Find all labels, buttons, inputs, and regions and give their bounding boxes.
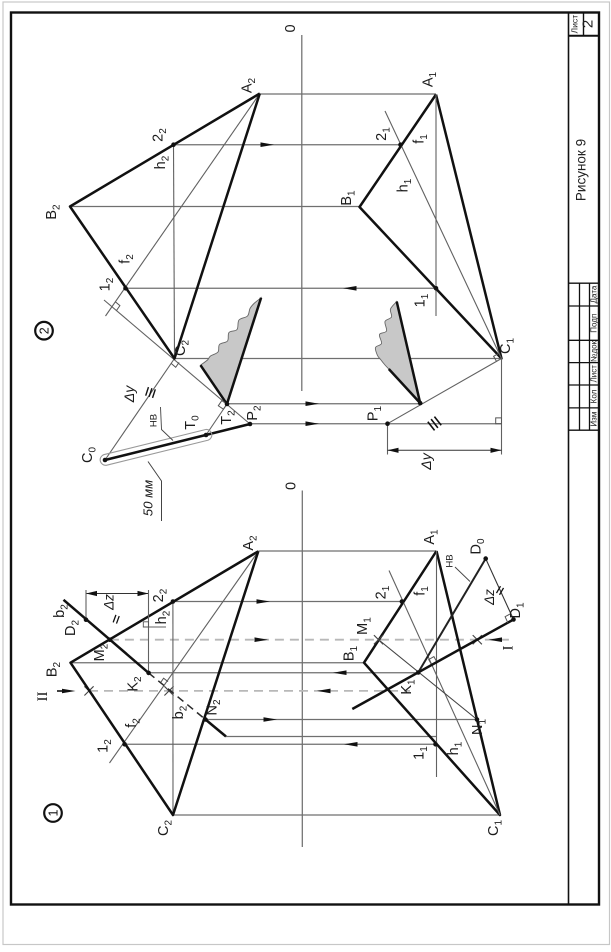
svg-text:0: 0 xyxy=(283,24,299,32)
svg-text:Лист: Лист xyxy=(590,365,599,383)
svg-text:Рисунок 9: Рисунок 9 xyxy=(574,139,589,201)
svg-text:2: 2 xyxy=(580,20,597,28)
svg-text:II: II xyxy=(35,692,51,702)
svg-text:2: 2 xyxy=(37,327,51,334)
svg-text:Δy: Δy xyxy=(418,452,434,470)
svg-text:№док: №док xyxy=(590,340,599,362)
svg-text:Подп: Подп xyxy=(590,314,599,333)
svg-text:1: 1 xyxy=(46,809,60,816)
svg-text:Изм: Изм xyxy=(590,412,599,427)
svg-text:Δz: Δz xyxy=(102,594,117,611)
svg-text:Δy: Δy xyxy=(121,385,137,403)
svg-text:НВ: НВ xyxy=(149,414,160,427)
svg-text:Лист: Лист xyxy=(570,15,580,34)
svg-text:Кол: Кол xyxy=(590,389,599,403)
svg-text:НВ: НВ xyxy=(445,554,456,567)
svg-text:50 мм: 50 мм xyxy=(141,480,156,516)
svg-text:Дата: Дата xyxy=(590,285,599,303)
svg-text:0: 0 xyxy=(284,482,300,490)
svg-text:Δz: Δz xyxy=(482,589,497,606)
svg-text:I: I xyxy=(501,646,517,651)
